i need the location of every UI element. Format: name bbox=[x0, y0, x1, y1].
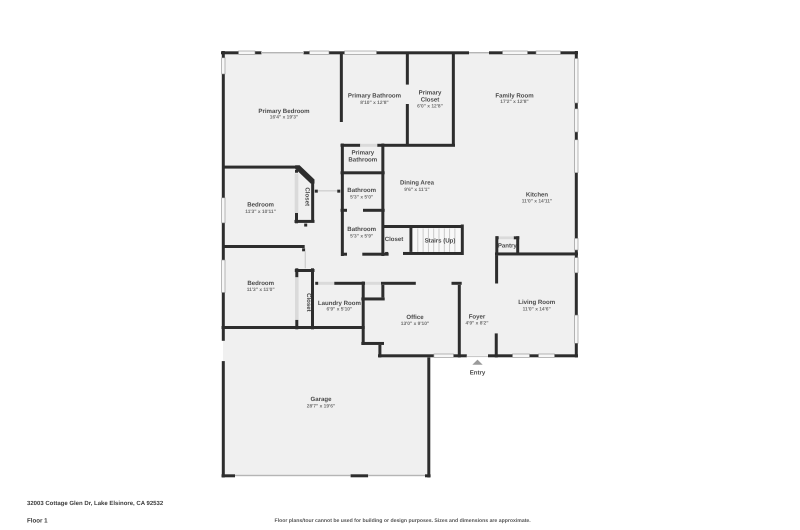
svg-text:Stairs (Up): Stairs (Up) bbox=[425, 238, 456, 245]
svg-text:Bathroom: Bathroom bbox=[347, 226, 376, 233]
svg-text:9'6" x 11'1": 9'6" x 11'1" bbox=[404, 187, 429, 193]
svg-text:Bathroom: Bathroom bbox=[348, 156, 377, 163]
svg-text:Entry: Entry bbox=[470, 370, 486, 377]
svg-text:Kitchen: Kitchen bbox=[526, 192, 549, 199]
svg-text:Pantry: Pantry bbox=[498, 243, 518, 250]
svg-text:Bedroom: Bedroom bbox=[247, 280, 274, 287]
svg-text:17'2" x 12'8": 17'2" x 12'8" bbox=[500, 99, 528, 105]
svg-text:Laundry Room: Laundry Room bbox=[318, 300, 362, 307]
svg-text:Dining Area: Dining Area bbox=[400, 180, 435, 187]
svg-text:5'3" x 5'0": 5'3" x 5'0" bbox=[350, 194, 373, 200]
svg-text:Primary Bathroom: Primary Bathroom bbox=[348, 92, 402, 99]
svg-text:Closet: Closet bbox=[385, 236, 404, 243]
svg-text:Primary: Primary bbox=[419, 89, 442, 96]
svg-text:Floor plans/tour cannot be use: Floor plans/tour cannot be used for buil… bbox=[275, 518, 532, 524]
svg-text:8'10" x 12'8": 8'10" x 12'8" bbox=[360, 100, 388, 106]
svg-text:Family Room: Family Room bbox=[495, 92, 534, 99]
svg-text:Office: Office bbox=[406, 314, 424, 321]
svg-text:Closet: Closet bbox=[303, 187, 310, 206]
svg-text:32003 Cottage Glen Dr, Lake El: 32003 Cottage Glen Dr, Lake Elsinore, CA… bbox=[27, 500, 164, 507]
svg-text:Bathroom: Bathroom bbox=[347, 187, 376, 194]
svg-text:11'0" x 14'6": 11'0" x 14'6" bbox=[523, 306, 551, 312]
svg-text:Closet: Closet bbox=[421, 96, 440, 103]
svg-text:11'3" x 11'0": 11'3" x 11'0" bbox=[247, 287, 275, 293]
svg-text:11'3" x 10'11": 11'3" x 10'11" bbox=[245, 209, 276, 215]
svg-text:5'3" x 5'9": 5'3" x 5'9" bbox=[350, 233, 373, 239]
svg-text:Closet: Closet bbox=[305, 293, 312, 312]
svg-text:Foyer: Foyer bbox=[469, 314, 486, 321]
svg-text:Bedroom: Bedroom bbox=[247, 202, 274, 209]
svg-text:13'0" x 9'10": 13'0" x 9'10" bbox=[401, 321, 429, 327]
svg-text:6'9" x 5'10": 6'9" x 5'10" bbox=[327, 307, 353, 313]
svg-text:11'0" x 14'11": 11'0" x 14'11" bbox=[522, 198, 553, 204]
svg-text:Living Room: Living Room bbox=[518, 299, 555, 306]
svg-text:16'4" x 19'3": 16'4" x 19'3" bbox=[270, 115, 298, 121]
svg-text:Garage: Garage bbox=[310, 396, 332, 403]
svg-text:Primary Bedroom: Primary Bedroom bbox=[258, 108, 310, 115]
svg-text:Floor 1: Floor 1 bbox=[27, 517, 48, 524]
svg-text:4'9" x 8'2": 4'9" x 8'2" bbox=[465, 321, 488, 327]
svg-text:28'7" x 19'6": 28'7" x 19'6" bbox=[307, 403, 335, 409]
svg-text:6'0" x 12'8": 6'0" x 12'8" bbox=[417, 104, 443, 110]
